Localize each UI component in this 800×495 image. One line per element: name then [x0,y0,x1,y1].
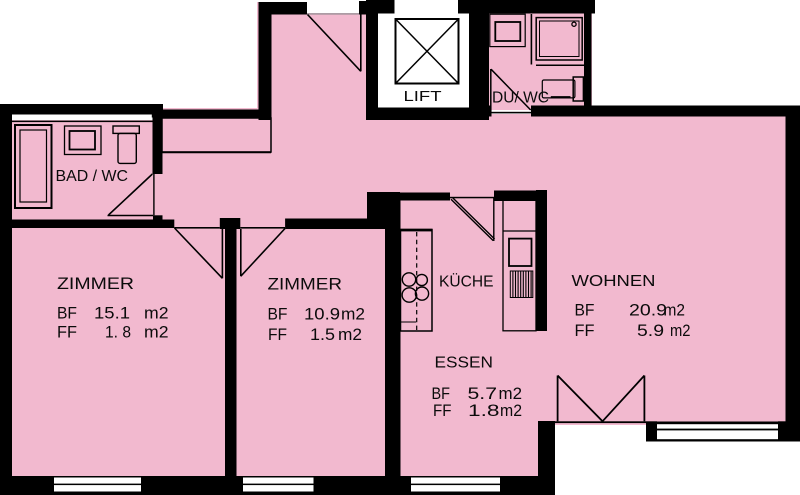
svg-text:KÜCHE: KÜCHE [439,273,494,291]
svg-text:m2: m2 [144,305,169,323]
svg-text:1. 8: 1. 8 [105,324,131,342]
svg-text:FF: FF [433,402,452,420]
svg-text:WOHNEN: WOHNEN [572,273,656,290]
svg-text:m2: m2 [338,326,362,344]
svg-text:FF: FF [575,322,595,340]
svg-text:FF: FF [57,324,77,342]
svg-text:ZIMMER: ZIMMER [57,275,134,293]
svg-text:m2: m2 [499,385,523,403]
svg-text:1.8: 1.8 [468,402,500,420]
svg-text:10.9: 10.9 [304,306,340,324]
svg-text:ZIMMER: ZIMMER [268,276,343,294]
svg-text:ESSEN: ESSEN [435,355,494,372]
svg-text:FF: FF [268,326,287,344]
svg-text:BAD / WC: BAD / WC [56,168,129,185]
svg-text:m2: m2 [670,322,691,340]
svg-text:20.9: 20.9 [629,302,667,320]
svg-text:DU/ WC: DU/ WC [492,90,549,107]
svg-text:m2: m2 [664,302,686,320]
svg-text:BF: BF [575,302,595,320]
svg-text:m2: m2 [341,306,365,324]
svg-text:1.5: 1.5 [310,326,335,344]
svg-text:5.7: 5.7 [468,385,498,403]
svg-text:m2: m2 [144,324,169,342]
svg-text:LIFT: LIFT [404,89,442,105]
svg-text:BF: BF [57,305,77,323]
svg-text:BF: BF [432,385,451,403]
svg-text:15.1: 15.1 [94,305,130,323]
svg-text:m2: m2 [500,402,522,420]
svg-text:5.9: 5.9 [637,322,664,340]
svg-text:BF: BF [268,306,288,324]
